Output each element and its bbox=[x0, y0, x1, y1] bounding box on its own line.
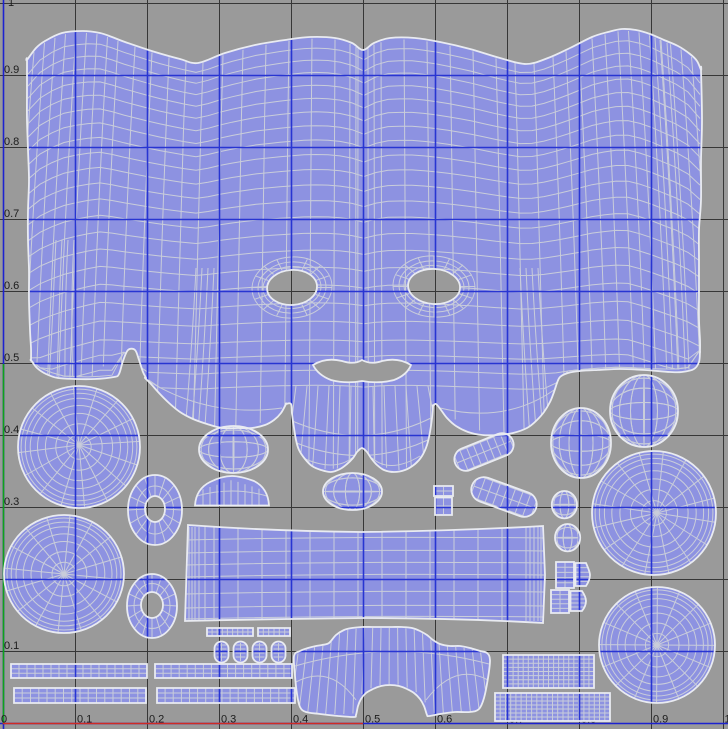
svg-text:0.6: 0.6 bbox=[437, 714, 452, 726]
svg-text:0.9: 0.9 bbox=[4, 64, 19, 76]
svg-text:0.5: 0.5 bbox=[365, 714, 380, 726]
svg-text:0.1: 0.1 bbox=[4, 640, 19, 652]
svg-text:0.4: 0.4 bbox=[4, 424, 19, 436]
svg-text:0.2: 0.2 bbox=[149, 714, 164, 726]
svg-text:0.7: 0.7 bbox=[4, 208, 19, 220]
svg-text:0.6: 0.6 bbox=[4, 280, 19, 292]
svg-text:0.3: 0.3 bbox=[4, 496, 19, 508]
svg-text:0.8: 0.8 bbox=[4, 136, 19, 148]
svg-text:0.4: 0.4 bbox=[293, 714, 308, 726]
svg-text:0.3: 0.3 bbox=[221, 714, 236, 726]
svg-text:1: 1 bbox=[725, 714, 728, 726]
svg-text:0.5: 0.5 bbox=[4, 352, 19, 364]
svg-text:1: 1 bbox=[8, 0, 14, 9]
svg-text:0.1: 0.1 bbox=[77, 714, 92, 726]
svg-text:0.9: 0.9 bbox=[653, 714, 668, 726]
svg-text:0: 0 bbox=[1, 714, 7, 726]
